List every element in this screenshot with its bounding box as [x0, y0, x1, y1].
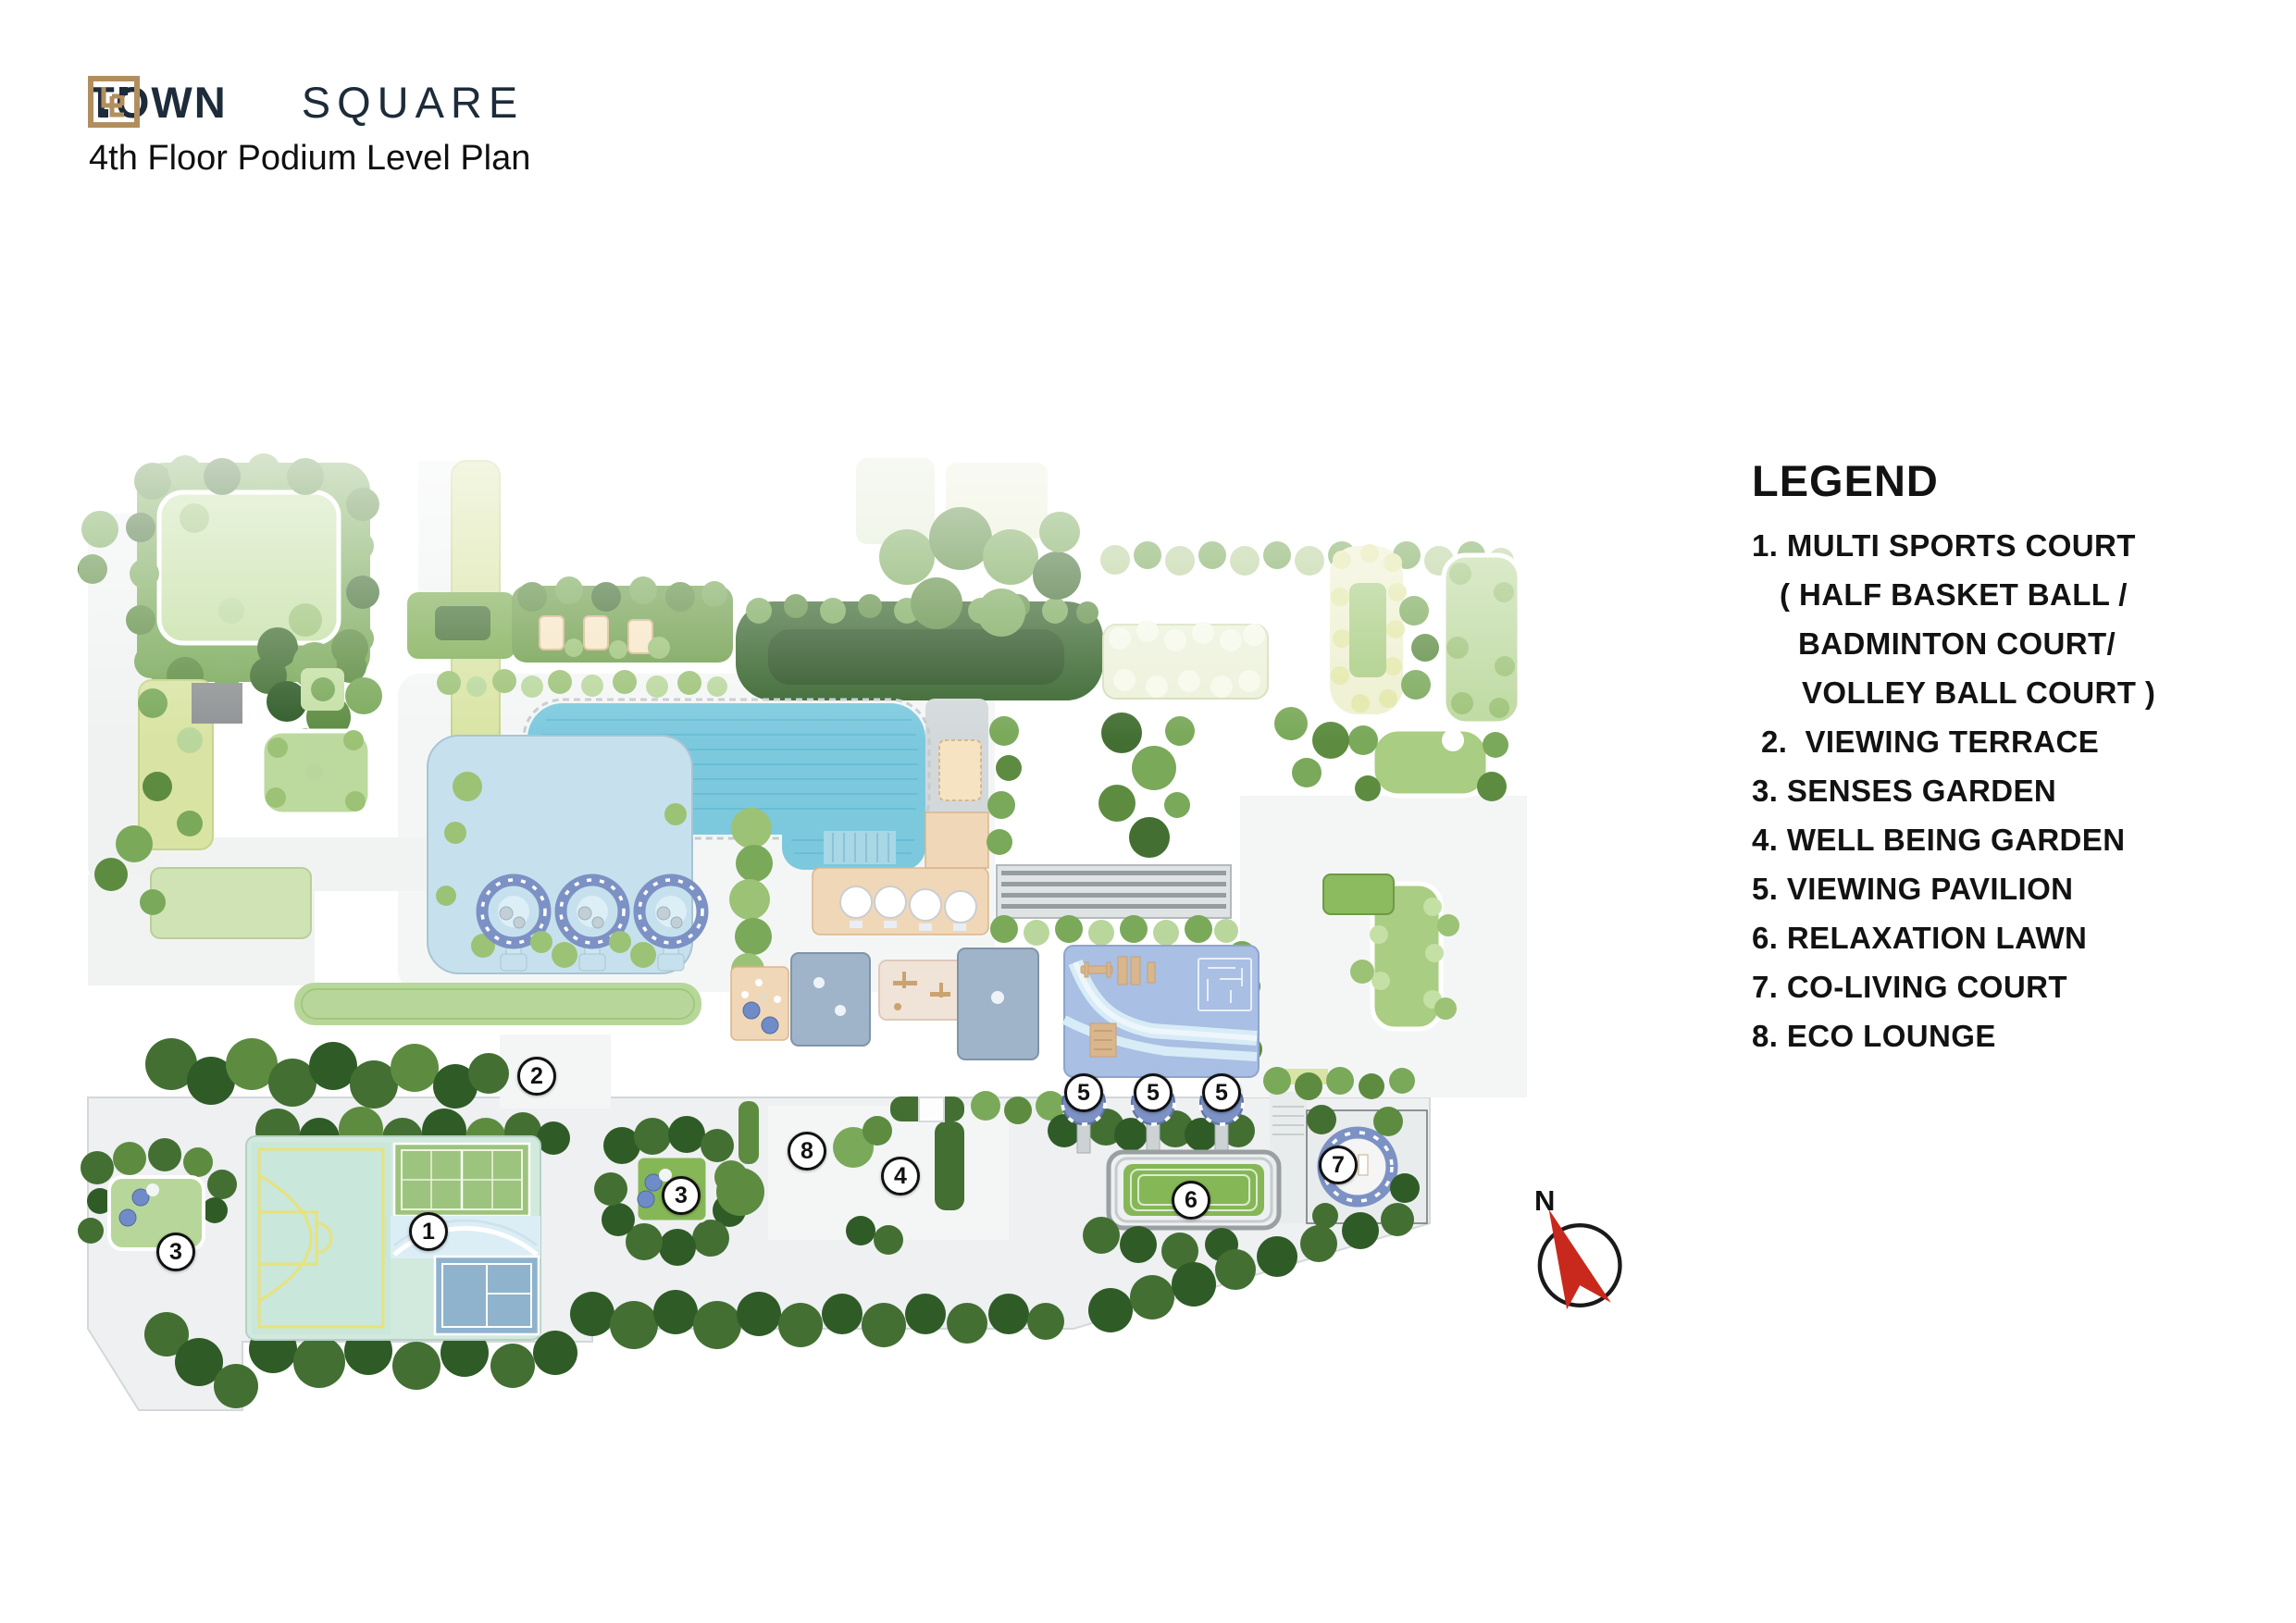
plan-marker: 5 — [1202, 1073, 1241, 1112]
viewing-terrace — [294, 983, 701, 1025]
brand-logo: TOWN SQUARE — [88, 76, 524, 128]
half-basketball-court — [252, 1142, 391, 1334]
legend-item: 4. WELL BEING GARDEN — [1752, 815, 2296, 864]
legend-heading: LEGEND — [1752, 455, 2296, 506]
brand-square-icon — [239, 76, 291, 128]
compass-icon — [1518, 1199, 1638, 1319]
legend-item: 3. SENSES GARDEN — [1752, 766, 2296, 815]
kids-play-court — [1064, 946, 1259, 1077]
plan-marker: 3 — [662, 1176, 701, 1215]
plan-marker: 1 — [409, 1212, 448, 1251]
legend-item: BADMINTON COURT/ — [1752, 619, 2296, 668]
kids-aqua-zone — [731, 946, 1259, 1077]
plan-marker: 2 — [517, 1057, 556, 1096]
legend-items: 1. MULTI SPORTS COURT( HALF BASKET BALL … — [1752, 521, 2296, 1060]
plan-marker: 5 — [1134, 1073, 1173, 1112]
legend-item: 8. ECO LOUNGE — [1752, 1011, 2296, 1060]
plan-marker: 6 — [1172, 1181, 1210, 1220]
artwork-fade — [79, 435, 1541, 740]
legend: LEGEND 1. MULTI SPORTS COURT( HALF BASKE… — [1752, 455, 2296, 1060]
volleyball-court — [435, 1257, 539, 1334]
leisure-pool — [791, 953, 870, 1046]
legend-item: 7. CO-LIVING COURT — [1752, 962, 2296, 1011]
legend-item: 5. VIEWING PAVILION — [1752, 864, 2296, 913]
lap-pool — [958, 948, 1038, 1059]
brand-word-square: SQUARE — [302, 77, 525, 128]
plan-marker: 3 — [156, 1233, 195, 1271]
badminton-courts — [394, 1144, 529, 1216]
multi-sports-court — [246, 1136, 540, 1340]
north-compass: N — [1510, 1186, 1640, 1316]
legend-item: VOLLEY BALL COURT ) — [1752, 668, 2296, 717]
legend-item: ( HALF BASKET BALL / — [1752, 570, 2296, 619]
legend-item: 2. VIEWING TERRACE — [1752, 717, 2296, 766]
page-title: 4th Floor Podium Level Plan — [89, 139, 530, 179]
legend-item: 1. MULTI SPORTS COURT — [1752, 521, 2296, 570]
plan-marker: 7 — [1319, 1146, 1358, 1184]
plan-marker: 5 — [1064, 1073, 1103, 1112]
legend-item: 6. RELAXATION LAWN — [1752, 913, 2296, 962]
plan-marker: 8 — [788, 1132, 826, 1171]
timber-lounge-deck — [731, 967, 788, 1040]
sand-pit — [939, 740, 981, 800]
plan-marker: 4 — [881, 1157, 920, 1196]
